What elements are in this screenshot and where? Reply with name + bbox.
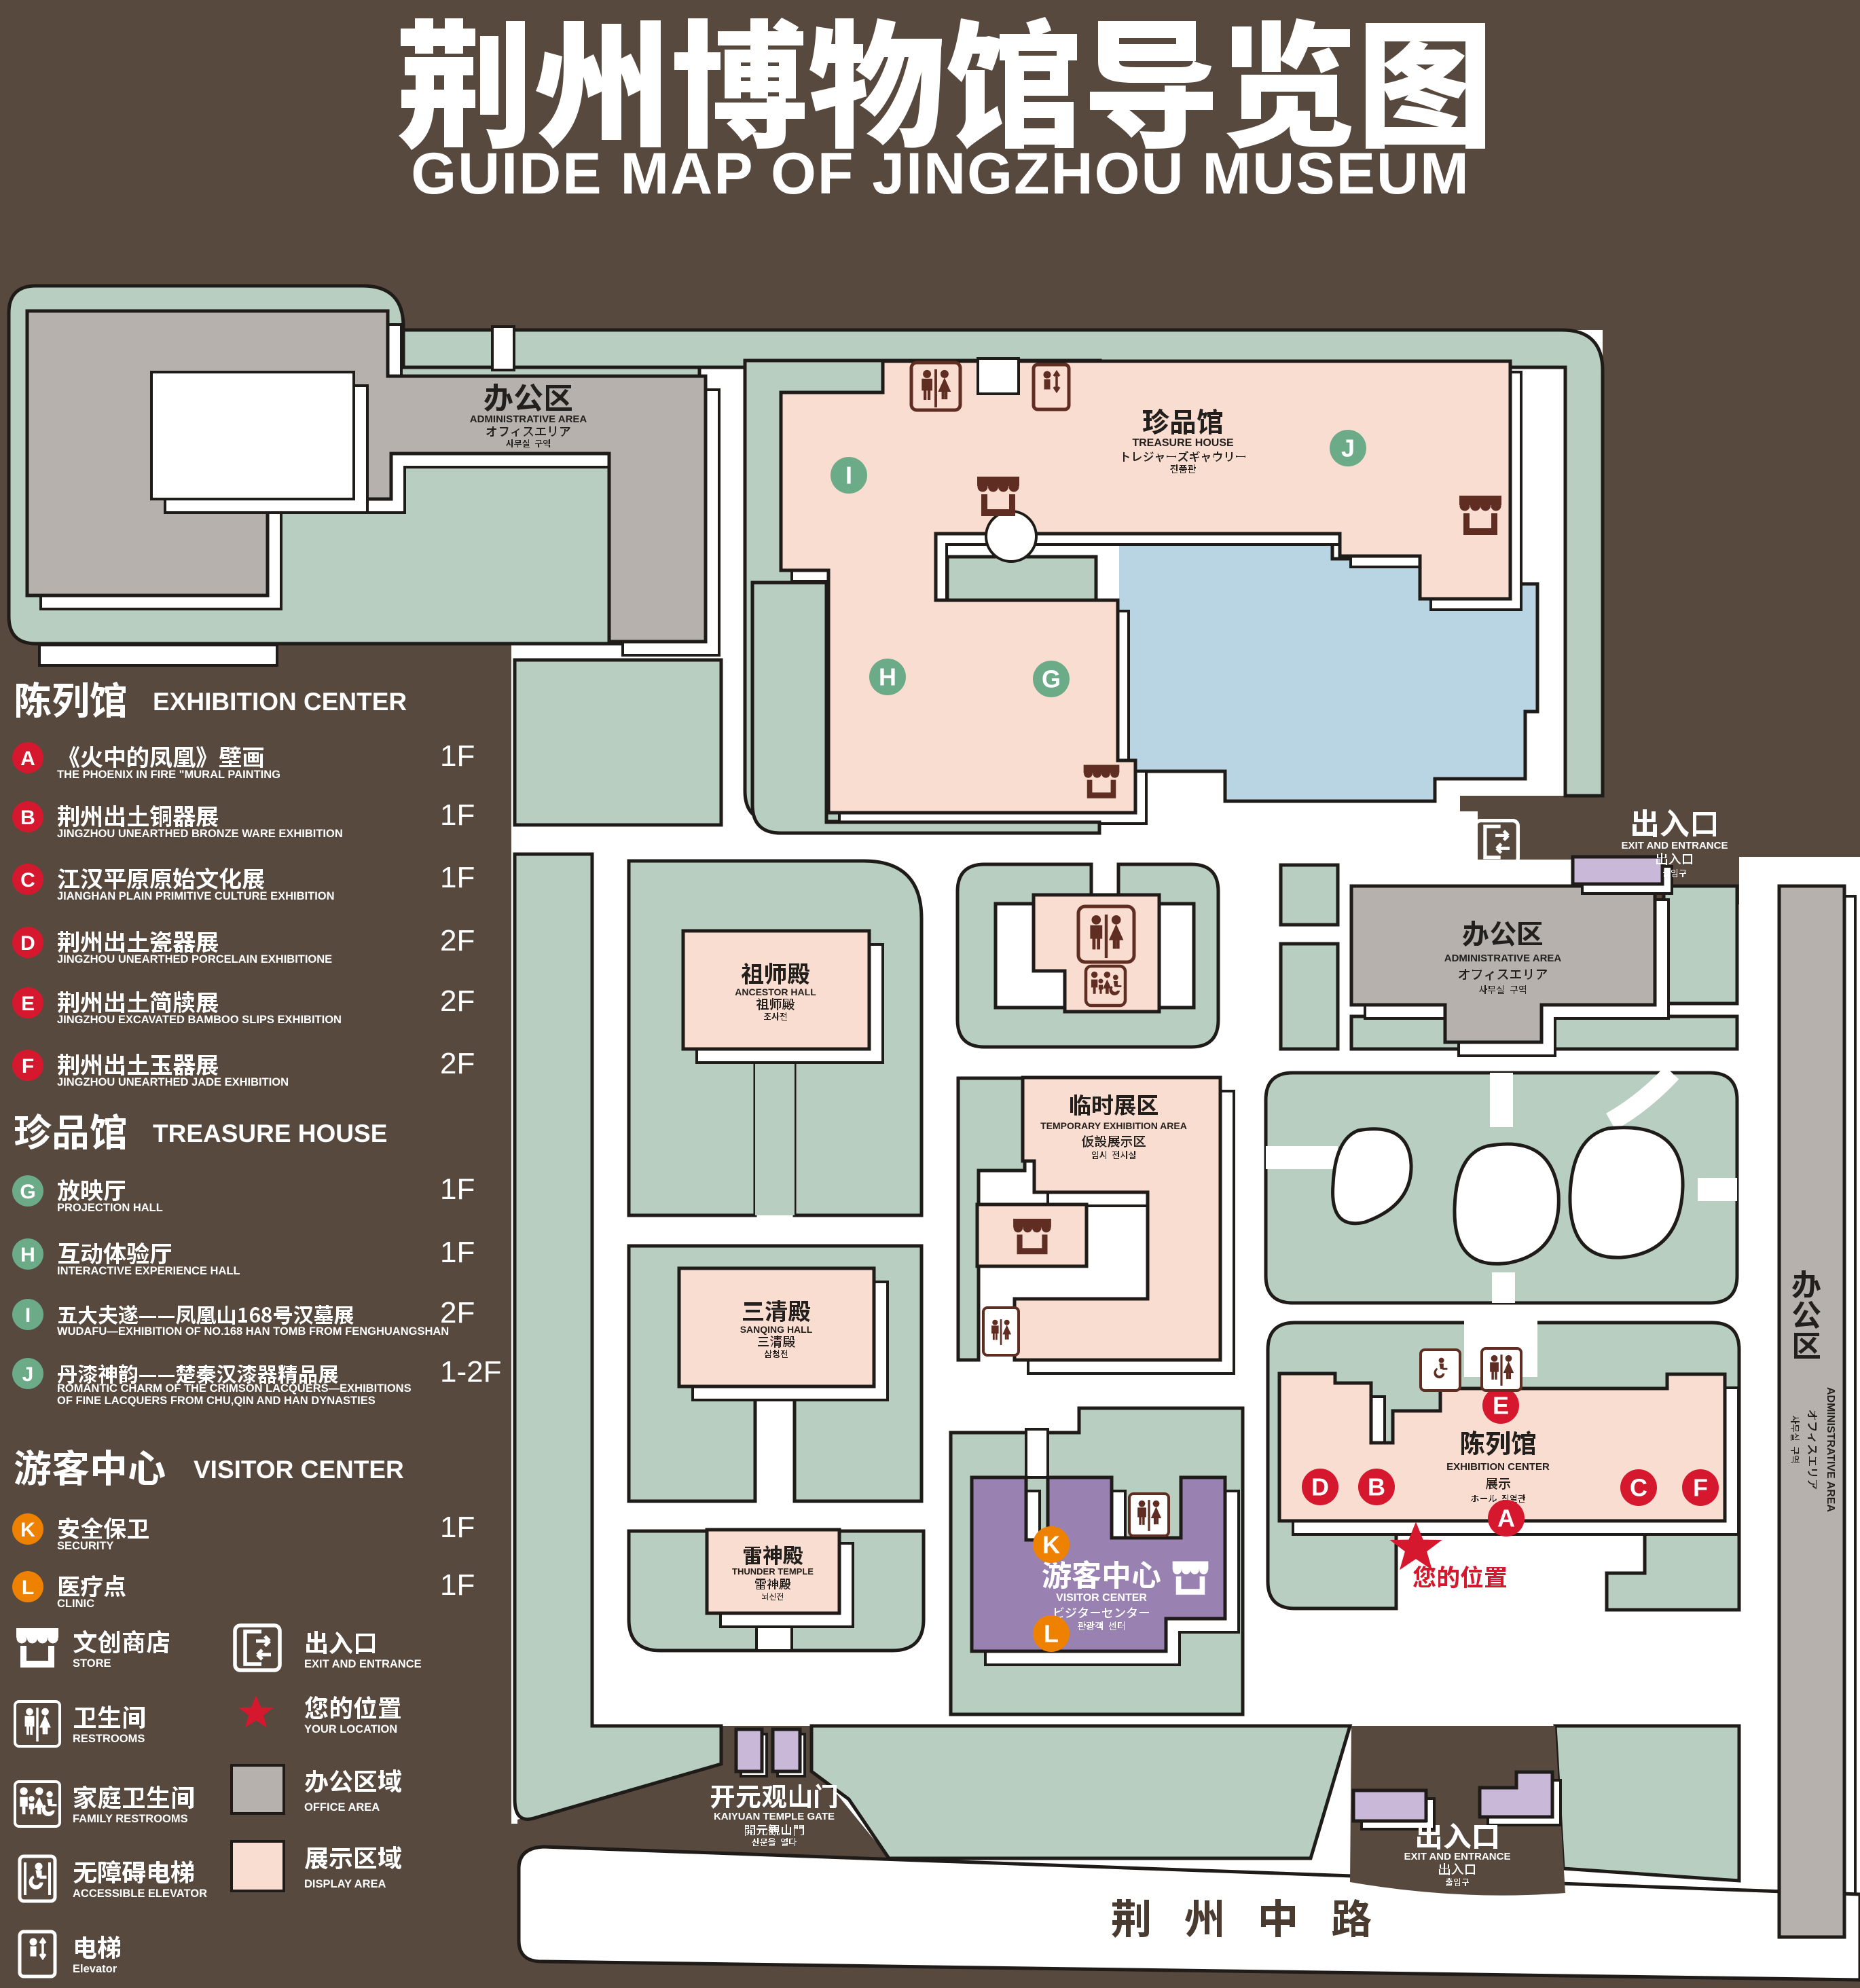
- svg-text:1-2F: 1-2F: [440, 1355, 501, 1388]
- svg-text:TREASURE HOUSE: TREASURE HOUSE: [153, 1120, 387, 1147]
- svg-text:VISITOR CENTER: VISITOR CENTER: [1056, 1592, 1147, 1604]
- svg-text:L: L: [1044, 1620, 1059, 1648]
- svg-text:EXIT AND ENTRANCE: EXIT AND ENTRANCE: [1404, 1851, 1511, 1862]
- svg-text:Elevator: Elevator: [73, 1963, 117, 1975]
- svg-text:SANQING HALL: SANQING HALL: [740, 1324, 813, 1335]
- svg-text:2F: 2F: [440, 1296, 475, 1329]
- svg-text:E: E: [1493, 1392, 1509, 1420]
- svg-text:2F: 2F: [440, 924, 475, 957]
- svg-text:1F: 1F: [440, 861, 475, 894]
- svg-text:C: C: [1630, 1474, 1647, 1502]
- svg-text:F: F: [1693, 1474, 1708, 1502]
- svg-text:EXHIBITION CENTER: EXHIBITION CENTER: [153, 688, 407, 716]
- svg-text:JINGZHOU UNEARTHED PORCELAIN E: JINGZHOU UNEARTHED PORCELAIN EXHIBITIONE: [57, 953, 332, 965]
- svg-text:GUIDE MAP OF JINGZHOU MUSEUM: GUIDE MAP OF JINGZHOU MUSEUM: [411, 141, 1470, 206]
- svg-text:G: G: [20, 1181, 35, 1203]
- svg-text:1F: 1F: [440, 798, 475, 832]
- svg-text:L: L: [22, 1577, 34, 1599]
- svg-text:FAMILY RESTROOMS: FAMILY RESTROOMS: [73, 1813, 188, 1825]
- svg-text:JINGZHOU UNEARTHED BRONZE WARE: JINGZHOU UNEARTHED BRONZE WARE EXHIBITIO…: [57, 828, 343, 840]
- svg-text:2F: 2F: [440, 1047, 475, 1080]
- svg-text:PROJECTION HALL: PROJECTION HALL: [57, 1202, 163, 1214]
- svg-text:1F: 1F: [440, 1236, 475, 1269]
- svg-text:D: D: [1311, 1473, 1329, 1501]
- svg-text:K: K: [20, 1519, 35, 1541]
- svg-text:J: J: [1341, 435, 1355, 462]
- svg-text:2F: 2F: [440, 984, 475, 1018]
- svg-text:ANCESTOR HALL: ANCESTOR HALL: [735, 987, 816, 997]
- svg-text:F: F: [22, 1055, 34, 1078]
- svg-text:C: C: [20, 869, 35, 891]
- svg-text:OF FINE LACQUERS FROM CHU,QIN: OF FINE LACQUERS FROM CHU,QIN AND HAN DY…: [57, 1395, 376, 1407]
- svg-text:ADMINISTRATIVE AREA: ADMINISTRATIVE AREA: [470, 413, 587, 425]
- svg-text:I: I: [845, 462, 852, 490]
- svg-text:G: G: [1042, 665, 1061, 693]
- svg-text:EXIT AND ENTRANCE: EXIT AND ENTRANCE: [304, 1658, 422, 1670]
- svg-text:CLINIC: CLINIC: [57, 1598, 94, 1610]
- svg-text:EXIT AND ENTRANCE: EXIT AND ENTRANCE: [1622, 840, 1728, 851]
- svg-text:YOUR LOCATION: YOUR LOCATION: [304, 1723, 397, 1735]
- svg-text:ADMINISTRATIVE AREA: ADMINISTRATIVE AREA: [1444, 953, 1562, 964]
- svg-text:ROMANTIC CHARM OF THE CRIMSON: ROMANTIC CHARM OF THE CRIMSON LACQUERS—E…: [57, 1382, 412, 1395]
- svg-text:VISITOR CENTER: VISITOR CENTER: [194, 1456, 404, 1484]
- svg-text:J: J: [22, 1363, 34, 1386]
- svg-text:ADMINISTRATIVE AREA: ADMINISTRATIVE AREA: [1825, 1387, 1836, 1512]
- svg-text:JINGZHOU UNEARTHED JADE EXHIBI: JINGZHOU UNEARTHED JADE EXHIBITION: [57, 1076, 289, 1088]
- svg-text:EXHIBITION CENTER: EXHIBITION CENTER: [1446, 1461, 1550, 1473]
- svg-text:1F: 1F: [440, 739, 475, 773]
- svg-text:I: I: [25, 1304, 31, 1327]
- svg-text:THE PHOENIX IN FIRE "MURAL PAI: THE PHOENIX IN FIRE "MURAL PAINTING: [57, 769, 280, 781]
- svg-text:A: A: [20, 748, 35, 770]
- svg-text:B: B: [20, 807, 35, 829]
- svg-text:RESTROOMS: RESTROOMS: [73, 1733, 145, 1745]
- svg-text:1F: 1F: [440, 1173, 475, 1206]
- svg-text:D: D: [20, 932, 35, 955]
- svg-text:1F: 1F: [440, 1568, 475, 1602]
- svg-text:STORE: STORE: [73, 1657, 111, 1670]
- svg-text:DISPLAY AREA: DISPLAY AREA: [304, 1878, 386, 1890]
- svg-text:K: K: [1042, 1531, 1060, 1559]
- svg-text:E: E: [21, 993, 35, 1015]
- svg-text:WUDAFU—EXHIBITION OF NO.168 HA: WUDAFU—EXHIBITION OF NO.168 HAN TOMB FRO…: [57, 1325, 449, 1338]
- svg-text:A: A: [1497, 1505, 1515, 1532]
- svg-text:KAIYUAN TEMPLE GATE: KAIYUAN TEMPLE GATE: [714, 1811, 835, 1822]
- svg-text:TREASURE HOUSE: TREASURE HOUSE: [1132, 437, 1234, 449]
- svg-text:ACCESSIBLE ELEVATOR: ACCESSIBLE ELEVATOR: [73, 1888, 207, 1900]
- svg-text:JIANGHAN PLAIN PRIMITIVE CULTU: JIANGHAN PLAIN PRIMITIVE CULTURE EXHIBIT…: [57, 890, 335, 902]
- svg-text:INTERACTIVE EXPERIENCE HALL: INTERACTIVE EXPERIENCE HALL: [57, 1265, 240, 1277]
- svg-text:THUNDER TEMPLE: THUNDER TEMPLE: [732, 1566, 814, 1577]
- svg-text:H: H: [879, 663, 896, 691]
- svg-text:OFFICE AREA: OFFICE AREA: [304, 1801, 380, 1814]
- svg-text:H: H: [20, 1244, 35, 1266]
- svg-text:TEMPORARY EXHIBITION AREA: TEMPORARY EXHIBITION AREA: [1040, 1120, 1187, 1131]
- svg-text:SECURITY: SECURITY: [57, 1540, 113, 1552]
- svg-text:JINGZHOU EXCAVATED BAMBOO SLIP: JINGZHOU EXCAVATED BAMBOO SLIPS EXHIBITI…: [57, 1014, 342, 1026]
- svg-text:1F: 1F: [440, 1511, 475, 1544]
- svg-text:B: B: [1368, 1473, 1385, 1501]
